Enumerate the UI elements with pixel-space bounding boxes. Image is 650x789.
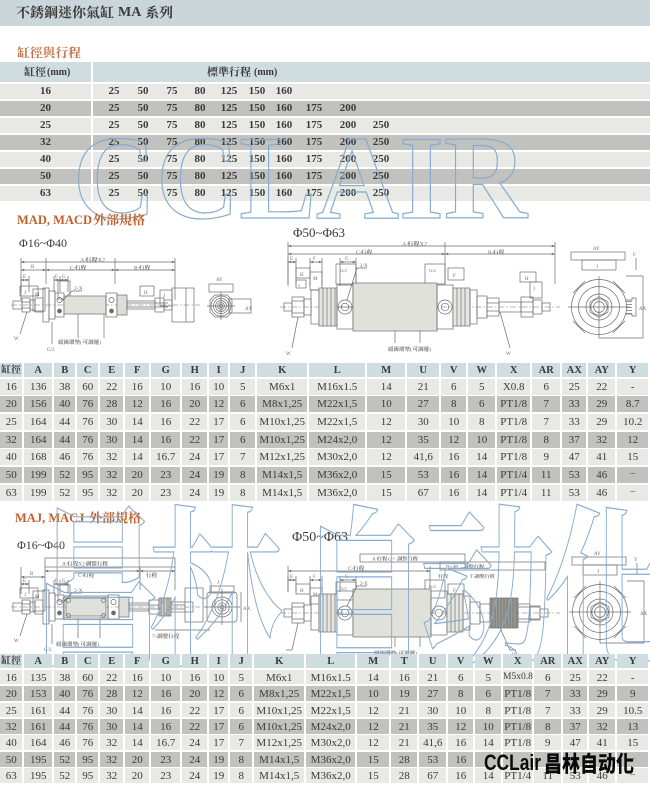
svg-text:W: W — [14, 639, 19, 644]
svg-text:H: H — [525, 277, 529, 282]
svg-text:J: J — [596, 265, 598, 270]
svg-text:G/2: G/2 — [47, 348, 55, 353]
svg-text:W: W — [506, 352, 511, 357]
svg-text:AY: AY — [216, 278, 223, 283]
svg-text:G/2: G/2 — [340, 268, 347, 273]
svg-text:M: M — [313, 277, 318, 282]
svg-text:E: E — [290, 575, 293, 580]
svg-text:(: ( — [410, 346, 412, 353]
svg-text:E: E — [23, 275, 26, 280]
svg-text:X2: X2 — [98, 258, 105, 264]
svg-text:G: G — [62, 275, 66, 280]
svg-text:C+: C+ — [356, 250, 363, 256]
svg-text:AY: AY — [593, 247, 600, 252]
svg-text:AX: AX — [245, 307, 253, 312]
svg-text:M: M — [35, 293, 40, 298]
svg-text:J: J — [298, 283, 300, 288]
svg-text:J: J — [24, 291, 26, 296]
svg-text:): ) — [429, 346, 431, 353]
svg-text:J: J — [533, 287, 535, 292]
svg-text:E: E — [290, 257, 293, 262]
svg-text:B+: B+ — [134, 266, 141, 272]
svg-text:F: F — [55, 275, 58, 280]
svg-text:2-X: 2-X — [74, 286, 83, 292]
svg-text:W: W — [14, 337, 19, 342]
svg-text:X2: X2 — [420, 242, 427, 248]
svg-text:2-X: 2-X — [360, 264, 368, 269]
svg-text:B: B — [31, 265, 35, 270]
svg-text:F: F — [453, 274, 456, 279]
svg-text:E: E — [23, 579, 26, 584]
svg-text:H: H — [144, 291, 148, 296]
svg-text:AX: AX — [639, 307, 647, 312]
svg-text:G/2: G/2 — [429, 268, 436, 273]
svg-text:W: W — [286, 352, 291, 357]
svg-text:C+: C+ — [70, 266, 77, 272]
svg-text:J: J — [24, 593, 26, 598]
svg-text:G: G — [345, 257, 349, 262]
svg-text:F: F — [633, 253, 636, 258]
svg-text:B+: B+ — [488, 250, 495, 256]
svg-text:(: ( — [80, 339, 82, 346]
svg-text:H: H — [300, 273, 304, 278]
svg-text:): ) — [99, 339, 101, 346]
svg-text:F: F — [313, 257, 316, 262]
